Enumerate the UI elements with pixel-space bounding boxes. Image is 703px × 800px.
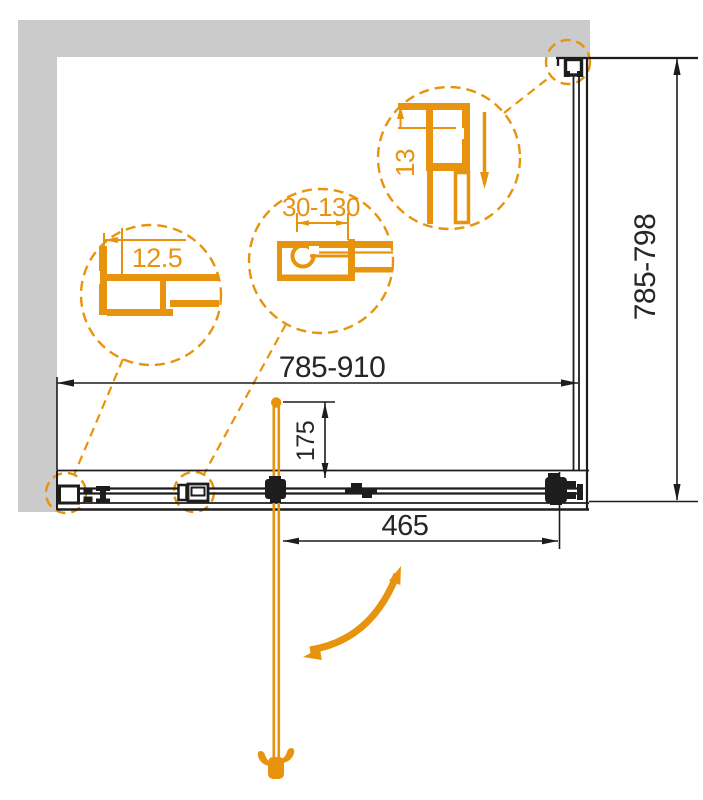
wall-left <box>18 20 57 512</box>
right-roller-assembly <box>545 473 583 505</box>
detail-callout-wall-profile: 12.5 <box>81 225 221 365</box>
detail-callout-adjustment: 30-130 <box>249 189 393 333</box>
center-pivot-shoe <box>265 476 286 503</box>
adjustment-range-label: 30-130 <box>282 192 360 222</box>
connector-top-rail <box>504 76 551 113</box>
dimension-overall-height: 785-798 <box>589 58 698 502</box>
door-swing-arrow <box>303 566 401 660</box>
connector-wall-profile <box>74 359 123 475</box>
left-end-cap <box>60 486 79 503</box>
roller-carriage <box>179 484 209 501</box>
door-open-position-bar <box>258 397 294 779</box>
overall-height-label: 785-798 <box>629 214 662 321</box>
handle-offset-label: 175 <box>292 421 320 461</box>
rail-clamp <box>345 483 377 498</box>
top-rail-label: 13 <box>390 149 420 177</box>
dimension-handle-offset: 175 <box>283 402 335 478</box>
wall-profile-label: 12.5 <box>132 243 183 273</box>
bottom-rail <box>57 471 589 511</box>
wall-top <box>18 20 590 57</box>
door-handle-ornament <box>258 748 294 779</box>
technical-drawing-page: 785-910 785-798 175 465 <box>0 0 703 800</box>
overall-width-label: 785-910 <box>279 351 386 384</box>
technical-drawing: 785-910 785-798 175 465 <box>0 0 703 800</box>
left-guide-spool <box>96 486 110 504</box>
adjustment-profile-drawing <box>277 213 393 281</box>
detail-callout-top-rail: 13 <box>378 87 520 229</box>
door-width-label: 465 <box>382 510 429 542</box>
